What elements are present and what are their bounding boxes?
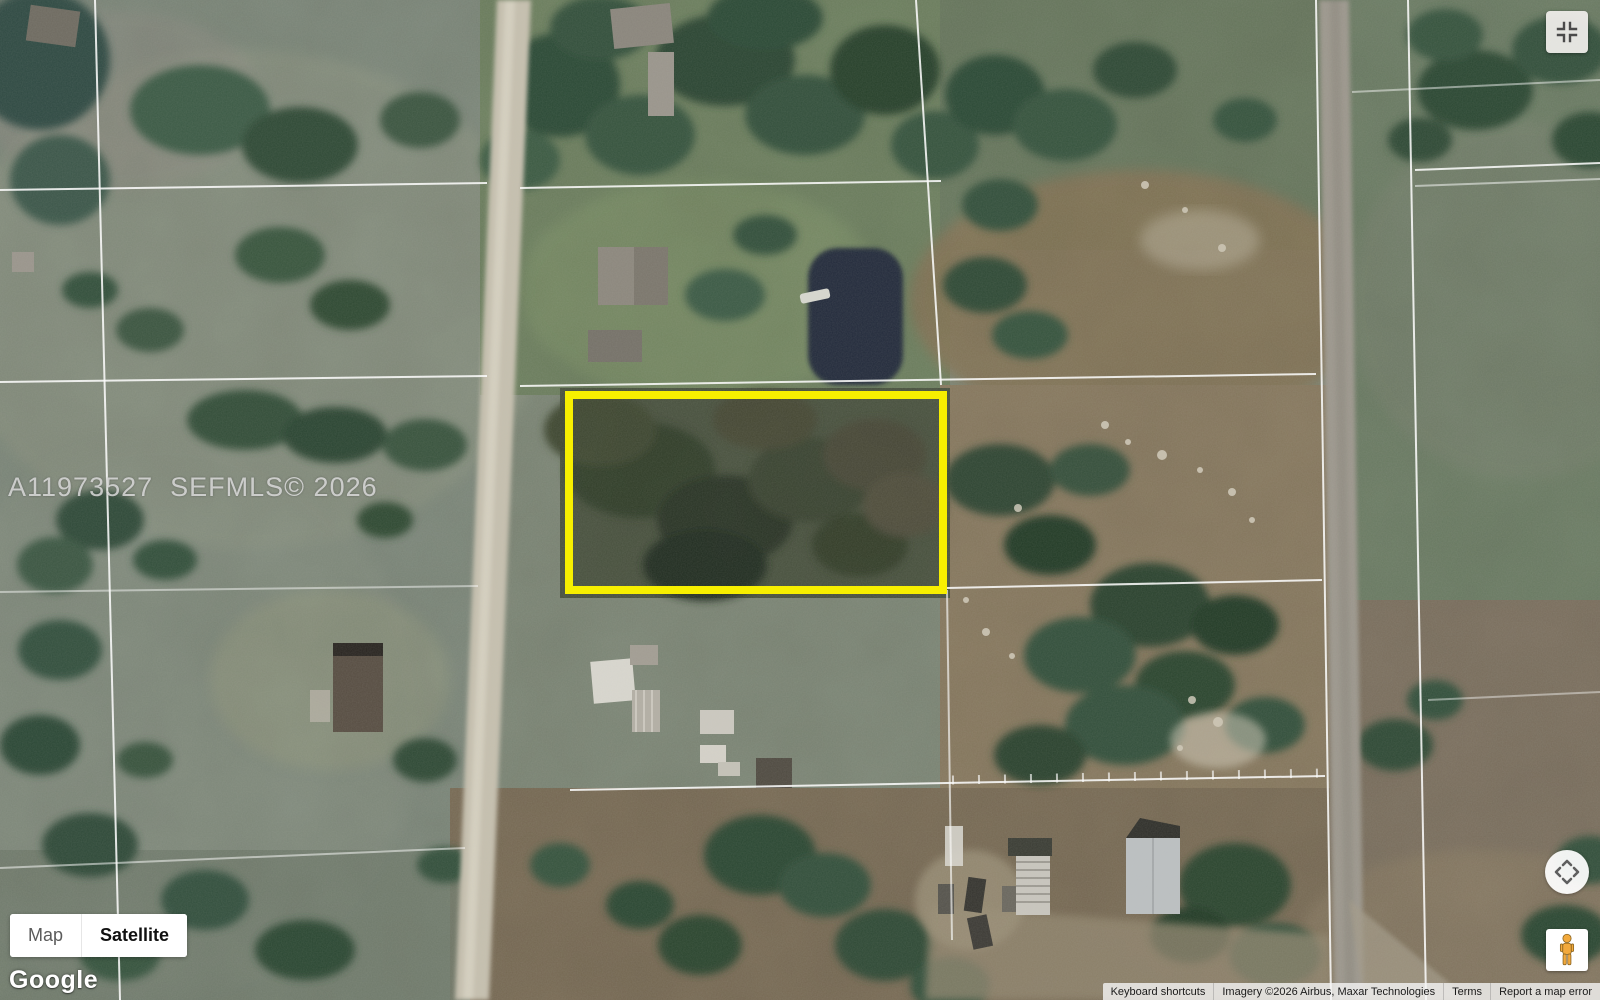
keyboard-shortcuts-link[interactable]: Keyboard shortcuts [1103,983,1214,1000]
attribution-bar: Keyboard shortcuts Imagery ©2026 Airbus,… [1103,983,1600,1000]
fullscreen-exit-icon [1555,20,1579,44]
pegman-street-view-icon [1556,933,1578,967]
map-type-control: Map Satellite [10,914,187,957]
pan-arrows-icon [1551,856,1583,888]
report-map-error-link[interactable]: Report a map error [1490,983,1600,1000]
imagery-attribution-text: Imagery ©2026 Airbus, Maxar Technologies [1213,983,1443,1000]
satellite-imagery-canvas[interactable] [0,0,1600,1000]
map-viewport: A11973527 SEFMLS© 2026 [0,0,1600,1000]
fullscreen-button[interactable] [1546,11,1588,53]
pan-control-button[interactable] [1545,850,1589,894]
map-type-button-map[interactable]: Map [10,914,81,957]
map-type-button-satellite[interactable]: Satellite [81,914,187,957]
terms-link[interactable]: Terms [1443,983,1490,1000]
google-logo[interactable]: Google [9,966,98,995]
pegman-street-view-button[interactable] [1546,929,1588,971]
